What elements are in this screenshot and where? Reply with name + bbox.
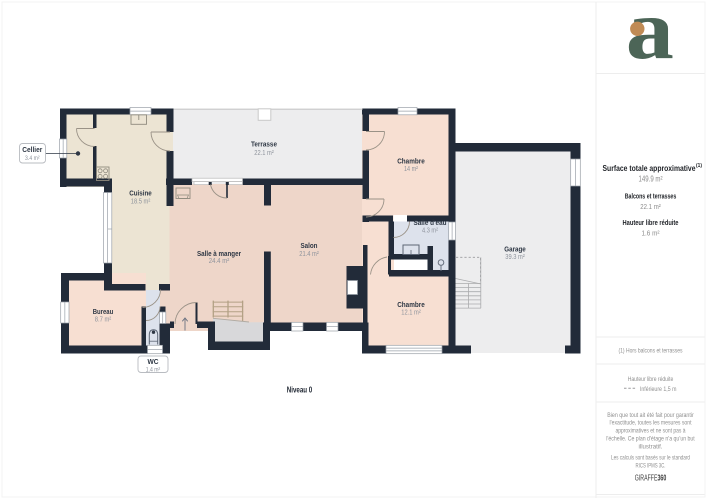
svg-text:Surface totale approximative: Surface totale approximative — [603, 163, 696, 173]
svg-text:22.1 m²: 22.1 m² — [254, 150, 274, 157]
svg-text:(1): (1) — [696, 163, 702, 169]
svg-text:Chambre: Chambre — [397, 300, 425, 309]
svg-text:1.6 m²: 1.6 m² — [642, 229, 660, 238]
svg-text:approximatives et ne sont pas: approximatives et ne sont pas à — [616, 428, 686, 435]
svg-text:22.1 m²: 22.1 m² — [640, 202, 661, 211]
svg-text:a: a — [626, 0, 674, 77]
svg-text:39.3 m²: 39.3 m² — [505, 254, 525, 261]
svg-text:12.1 m²: 12.1 m² — [401, 310, 421, 317]
svg-text:Bureau: Bureau — [93, 307, 114, 316]
svg-text:illustratif.: illustratif. — [639, 443, 663, 450]
svg-text:8.7 m²: 8.7 m² — [95, 316, 112, 323]
svg-text:l'exactitude, toutes les mesur: l'exactitude, toutes les mesures sont — [610, 420, 692, 427]
svg-text:(1) Hors balcons et terrasses: (1) Hors balcons et terrasses — [619, 348, 684, 355]
svg-text:WC: WC — [148, 359, 159, 366]
svg-text:RICS IPMS 3C.: RICS IPMS 3C. — [636, 463, 666, 470]
svg-text:Cellier: Cellier — [22, 147, 42, 154]
svg-text:21.4 m²: 21.4 m² — [299, 251, 319, 258]
svg-text:Hauteur libre réduite: Hauteur libre réduite — [628, 376, 674, 383]
svg-text:Cuisine: Cuisine — [129, 189, 152, 198]
svg-text:149.9 m²: 149.9 m² — [639, 175, 663, 184]
svg-text:Niveau 0: Niveau 0 — [287, 385, 313, 395]
svg-text:14 m²: 14 m² — [404, 166, 419, 173]
svg-text:Garage: Garage — [504, 245, 526, 254]
svg-text:Salle d'eau: Salle d'eau — [414, 218, 447, 227]
svg-text:Salle à manger: Salle à manger — [197, 249, 241, 258]
svg-text:Hauteur libre réduite: Hauteur libre réduite — [623, 220, 679, 227]
svg-text:3.4 m²: 3.4 m² — [25, 155, 40, 162]
svg-text:Chambre: Chambre — [397, 156, 425, 165]
svg-text:Balcons et terrasses: Balcons et terrasses — [625, 194, 677, 201]
svg-text:l'échelle. Ce plan d'étage n'a: l'échelle. Ce plan d'étage n'a qu'un but — [606, 436, 695, 443]
svg-text:1.4 m²: 1.4 m² — [146, 366, 161, 373]
svg-text:4.3 m²: 4.3 m² — [422, 228, 439, 235]
svg-text:Les calculs sont basés sur le: Les calculs sont basés sur le standard — [611, 455, 690, 462]
svg-text:24.4 m²: 24.4 m² — [209, 258, 230, 265]
svg-text:Inférieure 1,5 m: Inférieure 1,5 m — [640, 386, 677, 393]
svg-text:Bien que tout ait été fait pou: Bien que tout ait été fait pour garantir — [607, 412, 694, 419]
svg-text:18.5 m²: 18.5 m² — [131, 198, 151, 205]
svg-text:Terrasse: Terrasse — [251, 139, 277, 148]
svg-text:Salon: Salon — [301, 241, 318, 250]
svg-text:GIRAFFE360: GIRAFFE360 — [635, 473, 667, 482]
